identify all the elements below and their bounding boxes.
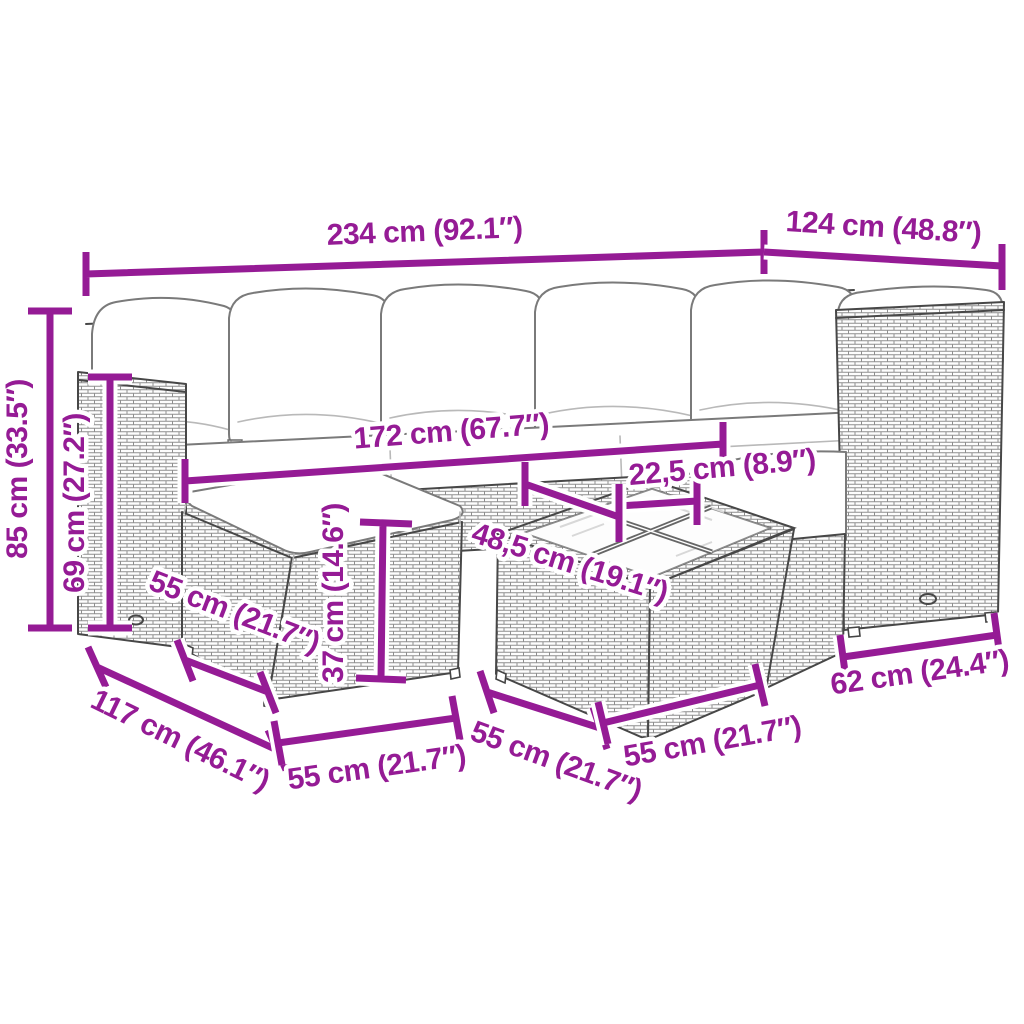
- dim-right-depth-label: 124 cm (48.8″): [785, 205, 982, 250]
- dim-total-width: 234 cm (92.1″): [86, 211, 764, 296]
- dim-stool-front-label: 55 cm (21.7″): [285, 739, 467, 797]
- right-side-panel: [836, 302, 1004, 630]
- dim-armrest-height-label: 69 cm (27.2″): [58, 413, 91, 593]
- dim-total-width-label: 234 cm (92.1″): [326, 211, 523, 252]
- sofa-foot: [848, 627, 860, 637]
- dim-table-side-label: 55 cm (21.7″): [466, 715, 646, 807]
- dim-stool-front: 55 cm (21.7″): [274, 696, 468, 796]
- dim-right-depth: 124 cm (48.8″): [764, 205, 1002, 290]
- left-armrest-panel: [78, 372, 186, 648]
- dim-total-height-label: 85 cm (33.5″): [1, 379, 34, 559]
- dim-table-height-label: 37 cm (14.6″): [317, 503, 350, 683]
- furniture-dimension-diagram: 234 cm (92.1″) 124 cm (48.8″) 85 cm (33.…: [0, 0, 1024, 1024]
- dimension-diagram-canvas: 234 cm (92.1″) 124 cm (48.8″) 85 cm (33.…: [0, 0, 1024, 1024]
- footstool-foot: [450, 668, 460, 679]
